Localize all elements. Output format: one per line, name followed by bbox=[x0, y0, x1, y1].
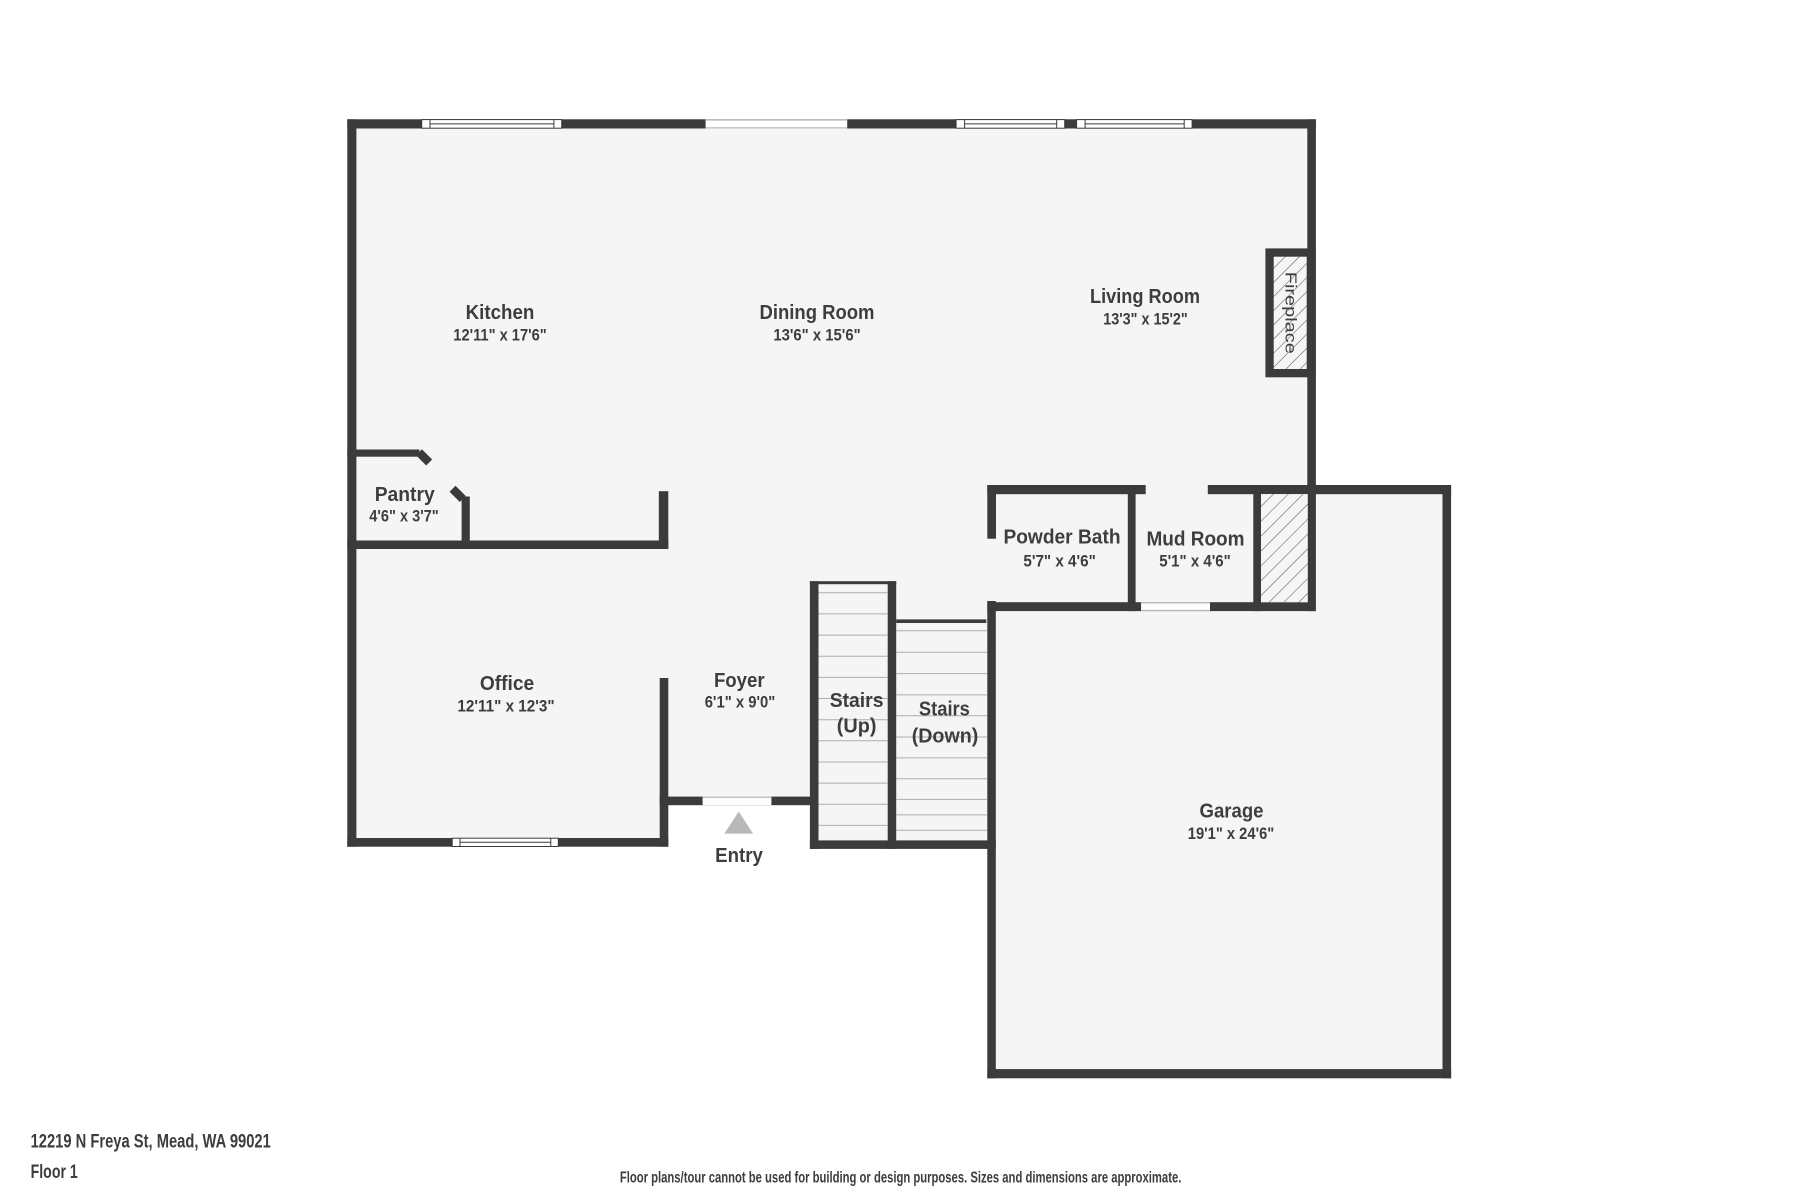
svg-text:Foyer: Foyer bbox=[714, 669, 765, 692]
svg-text:Kitchen: Kitchen bbox=[466, 301, 535, 324]
svg-text:5'1" x 4'6": 5'1" x 4'6" bbox=[1159, 552, 1231, 571]
svg-text:6'1" x 9'0": 6'1" x 9'0" bbox=[705, 693, 776, 712]
svg-text:Entry: Entry bbox=[715, 844, 763, 867]
svg-text:12'11" x 17'6": 12'11" x 17'6" bbox=[453, 326, 546, 345]
svg-text:Garage: Garage bbox=[1200, 800, 1264, 823]
svg-text:Pantry: Pantry bbox=[375, 483, 436, 506]
svg-text:Living Room: Living Room bbox=[1090, 285, 1200, 308]
svg-text:(Down): (Down) bbox=[912, 725, 979, 748]
svg-text:Floor 1: Floor 1 bbox=[31, 1162, 79, 1183]
svg-text:Mud Room: Mud Room bbox=[1146, 527, 1244, 550]
svg-text:Dining Room: Dining Room bbox=[760, 301, 875, 324]
svg-text:Floor plans/tour cannot be use: Floor plans/tour cannot be used for buil… bbox=[620, 1169, 1182, 1186]
svg-text:Powder Bath: Powder Bath bbox=[1003, 526, 1120, 549]
svg-text:Stairs: Stairs bbox=[919, 698, 970, 721]
svg-text:12219 N Freya St, Mead, WA 990: 12219 N Freya St, Mead, WA 99021 bbox=[31, 1132, 272, 1153]
svg-text:4'6" x 3'7": 4'6" x 3'7" bbox=[369, 507, 438, 526]
svg-text:13'3" x 15'2": 13'3" x 15'2" bbox=[1103, 309, 1188, 328]
svg-text:Office: Office bbox=[480, 672, 534, 695]
svg-text:5'7" x 4'6": 5'7" x 4'6" bbox=[1023, 552, 1095, 571]
svg-text:19'1" x 24'6": 19'1" x 24'6" bbox=[1188, 824, 1275, 843]
svg-text:(Up): (Up) bbox=[837, 715, 877, 738]
svg-text:Fireplace: Fireplace bbox=[1282, 272, 1299, 354]
svg-text:12'11" x 12'3": 12'11" x 12'3" bbox=[457, 697, 554, 716]
svg-text:13'6" x 15'6": 13'6" x 15'6" bbox=[773, 326, 860, 345]
svg-text:Stairs: Stairs bbox=[830, 689, 884, 712]
